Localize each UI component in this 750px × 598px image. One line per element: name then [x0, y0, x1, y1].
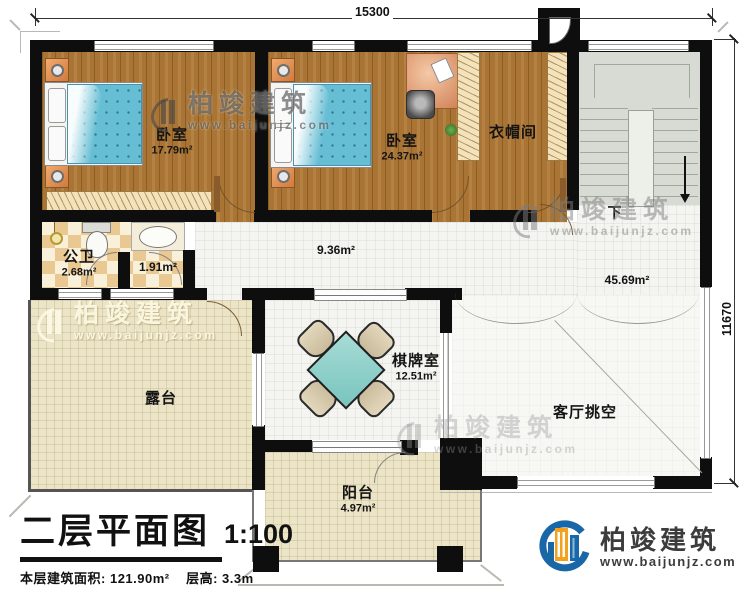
bed-symbol [44, 82, 143, 166]
room-label-wash-area: 1.91m² [139, 260, 177, 274]
mattress [293, 84, 371, 166]
stair-treads-left [580, 98, 628, 203]
window [58, 289, 102, 299]
room-label-hallway: 9.36m² [317, 243, 355, 257]
wall [252, 425, 265, 490]
room-name: 卧室 [382, 132, 423, 150]
eave-tick [9, 19, 20, 30]
lamp-symbol [50, 232, 63, 245]
right-dimension-line [734, 38, 735, 484]
wall [567, 52, 579, 210]
window [588, 41, 689, 51]
room-label-terrace: 露台 [145, 390, 177, 408]
wall [252, 440, 312, 452]
sliding-door [314, 289, 407, 301]
wall [252, 300, 265, 353]
window [517, 477, 655, 488]
drawing-scale: 1:100 [224, 519, 293, 550]
terrace-edge [28, 489, 254, 492]
wall [470, 210, 537, 222]
floor-height-value: 3.3m [222, 571, 254, 586]
room-area: 12.51m² [392, 370, 440, 383]
room-area: 24.37m² [382, 150, 423, 163]
window [312, 41, 355, 51]
room-label-cloakroom: 衣帽间 [489, 124, 537, 142]
wall [700, 457, 712, 489]
room-area: 4.97m² [341, 502, 376, 515]
room-label-balcony: 阳台 4.97m² [341, 484, 376, 515]
pillow [48, 88, 66, 123]
stair-stringer [628, 110, 654, 207]
room-label-public-bath: 公卫 2.68m² [62, 248, 97, 279]
stair-treads-right [652, 98, 698, 203]
eave-line [20, 31, 60, 32]
area-note-value: 121.90m² [110, 571, 170, 586]
right-dimension-value: 11670 [720, 299, 734, 339]
stairs-down-arrow [684, 156, 686, 194]
pillow [274, 88, 292, 124]
door-leaf [214, 176, 220, 212]
eave-line [20, 31, 21, 53]
window [110, 289, 174, 299]
bed-symbol [270, 82, 372, 168]
wall [242, 288, 314, 300]
wall [452, 476, 517, 489]
room-name: 卧室 [152, 126, 193, 144]
eave-tick [717, 21, 728, 32]
nightstand-symbol [271, 58, 295, 82]
room-area: 17.79m² [152, 144, 193, 157]
void-railing [443, 333, 449, 438]
balcony-pillar [437, 546, 463, 572]
pillow [48, 126, 66, 161]
stair-landing-line [594, 64, 595, 98]
wardrobe-symbol [457, 52, 480, 161]
wall [195, 288, 207, 300]
stairs-down-label: 下 [608, 205, 623, 222]
room-name: 露台 [145, 390, 177, 408]
title-row: 二层平面图 1:100 [20, 503, 293, 554]
window [94, 41, 214, 51]
pillow [274, 127, 292, 163]
top-dimension-value: 15300 [352, 5, 393, 19]
stair-landing-line [689, 64, 690, 98]
room-label-game-room: 棋牌室 12.51m² [392, 352, 440, 383]
plant-symbol [445, 124, 457, 136]
door-leaf [560, 178, 566, 212]
nightstand-symbol [45, 58, 69, 82]
wall [42, 210, 216, 222]
wall [30, 40, 42, 300]
wall [405, 288, 462, 300]
brand-website: www.baijunjz.com [600, 554, 736, 569]
stairs-down-arrowhead [680, 194, 690, 203]
eave-tick [480, 564, 502, 582]
brand-logo: 柏竣建筑 www.baijunjz.com [536, 518, 736, 578]
page-title: 二层平面图 [20, 503, 210, 554]
room-label-bedroom-1: 卧室 17.79m² [152, 126, 193, 157]
brand-text: 柏竣建筑 www.baijunjz.com [600, 527, 736, 569]
living-void-floor [452, 295, 700, 476]
wall [255, 52, 268, 222]
room-label-open-area: 45.69m² [605, 273, 650, 287]
room-name: 公卫 [62, 248, 97, 266]
brand-logo-icon [536, 518, 592, 578]
room-area: 1.91m² [139, 260, 177, 274]
wall [700, 40, 712, 287]
window [253, 353, 264, 427]
room-label-living-void: 客厅挑空 [553, 404, 617, 422]
window [407, 41, 532, 51]
room-name: 阳台 [341, 484, 376, 502]
room-name: 衣帽间 [489, 124, 537, 142]
sink-symbol [139, 226, 177, 248]
wall [440, 295, 452, 333]
window [701, 287, 711, 459]
room-name: 客厅挑空 [553, 404, 617, 422]
room-label-bedroom-2: 卧室 24.37m² [382, 132, 423, 163]
sliding-door [312, 441, 402, 453]
title-block: 二层平面图 1:100 本层建筑面积: 121.90m² 层高: 3.3m [20, 503, 293, 587]
floor-height-label: 层高: [186, 571, 218, 586]
nightstand-symbol [45, 164, 69, 188]
floor-plan-page: 15300 11670 [0, 0, 750, 598]
mattress [67, 84, 142, 164]
wall [254, 210, 432, 222]
wardrobe-symbol [46, 191, 212, 211]
room-area: 45.69m² [605, 273, 650, 287]
title-subtext: 本层建筑面积: 121.90m² 层高: 3.3m [20, 568, 293, 587]
title-rule [20, 557, 222, 562]
room-area: 9.36m² [317, 243, 355, 257]
stair-landing-line [594, 64, 690, 65]
terrace-edge [28, 300, 31, 492]
room-area: 2.68m² [62, 266, 97, 279]
room-name: 棋牌室 [392, 352, 440, 370]
chair-symbol [406, 90, 435, 119]
brand-name: 柏竣建筑 [600, 527, 736, 554]
area-note-label: 本层建筑面积: [20, 571, 106, 586]
wall [118, 252, 130, 288]
